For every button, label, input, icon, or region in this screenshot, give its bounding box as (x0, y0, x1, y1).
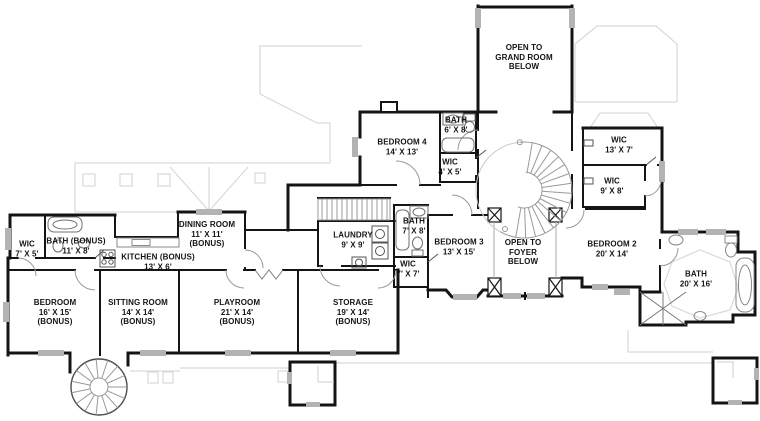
sink-icon (669, 235, 683, 245)
floor-plan-drawing (0, 0, 760, 421)
room-label-playroom: PLAYROOM 21' X 14' (BONUS) (214, 298, 260, 327)
room-label-kitchen: KITCHEN (BONUS) 13' X 6' (121, 253, 195, 272)
laundry-sink-icon (356, 259, 363, 266)
room-label-dining-room: DINING ROOM 11' X 11' (BONUS) (179, 220, 235, 249)
room-label-wic-bedroom-4: WIC 4' X 5' (438, 158, 461, 177)
room-label-wic-7x7: WIC 7' X 7' (396, 260, 419, 279)
room-label-bedroom-2: BEDROOM 2 20' X 14' (587, 240, 636, 259)
kitchen-sink-icon (132, 240, 150, 246)
spiral-staircase (71, 359, 127, 415)
toilet-icon (412, 250, 423, 256)
toilet-icon (725, 236, 737, 243)
straight-staircase (318, 199, 390, 220)
room-label-bath-bedroom-3: BATH 7' X 8' (402, 217, 425, 236)
room-label-bath-master: BATH 20' X 16' (680, 270, 712, 289)
room-label-bath-bonus: BATH (BONUS) 11' X 8' (46, 237, 105, 256)
closet-rods (584, 140, 593, 184)
porch-structure-center (287, 362, 335, 407)
room-label-wic-9x8: WIC 9' X 8' (600, 177, 623, 196)
floor-plan: OPEN TO GRAND ROOM BELOW BEDROOM 4 14' X… (0, 0, 760, 421)
room-label-grand-room-open: OPEN TO GRAND ROOM BELOW (495, 43, 552, 72)
room-label-foyer-open: OPEN TO FOYER BELOW (505, 238, 542, 267)
room-label-sitting-room: SITTING ROOM 14' X 14' (BONUS) (108, 298, 168, 327)
room-label-bath-bedroom-4: BATH 6' X 8' (444, 116, 467, 135)
chimney (381, 102, 397, 112)
room-label-laundry: LAUNDRY 9' X 9' (333, 231, 373, 250)
room-label-wic-13x7: WIC 13' X 7' (605, 136, 633, 155)
room-label-bedroom-bonus: BEDROOM 16' X 15' (BONUS) (34, 298, 76, 327)
room-label-wic-7x5: WIC 7' X 5' (15, 240, 38, 259)
room-label-bedroom-3: BEDROOM 3 13' X 15' (434, 238, 483, 257)
grand-staircase (476, 140, 572, 238)
room-label-bedroom-4: BEDROOM 4 14' X 13' (377, 138, 426, 157)
room-label-storage: STORAGE 19' X 14' (BONUS) (333, 298, 373, 327)
porch-structure-right (713, 358, 759, 405)
